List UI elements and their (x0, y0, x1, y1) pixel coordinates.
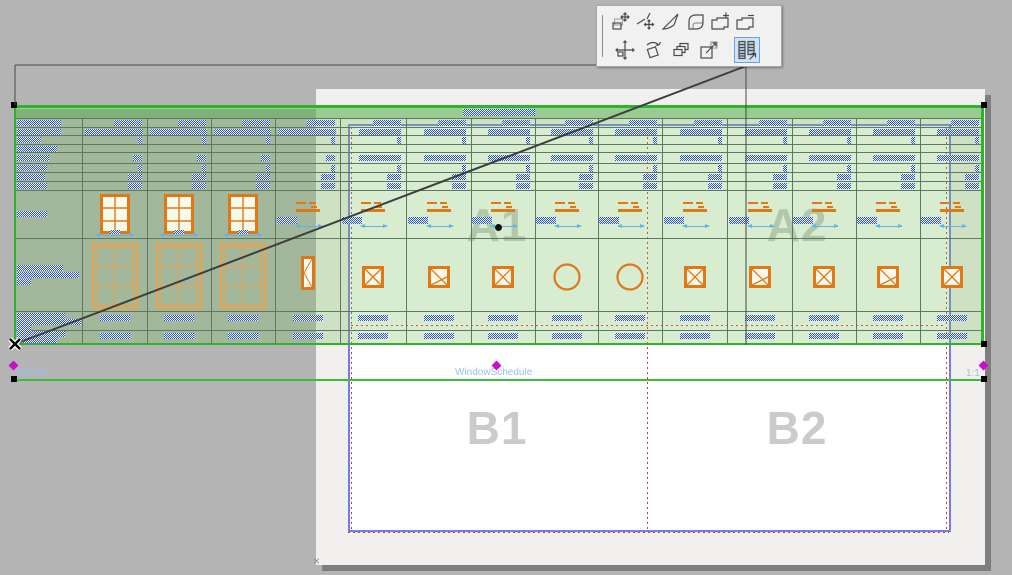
window-plan-symbol (940, 209, 964, 212)
table-row-line (14, 172, 984, 173)
greeked-text (551, 155, 593, 161)
greeked-text (17, 183, 47, 189)
greeked-text (85, 129, 143, 135)
selection-edge-right[interactable] (981, 105, 984, 345)
greeked-text (680, 129, 722, 135)
greeked-text (809, 155, 851, 161)
sheet-corner-marker: × (313, 554, 320, 568)
greeked-text (809, 129, 851, 135)
window-plan-symbol (427, 209, 451, 212)
window-plan-symbol (812, 202, 822, 204)
table-row-line (14, 190, 984, 191)
dimension-line (96, 235, 134, 236)
greeked-text (536, 217, 556, 224)
window-plan-symbol (555, 202, 565, 204)
pet-palette[interactable] (596, 5, 782, 67)
table-row-line (14, 144, 984, 145)
greeked-text (565, 120, 593, 126)
greeked-text (526, 165, 530, 172)
drawing-title-label[interactable]: WindowSchedule (455, 367, 532, 378)
greeked-text (873, 129, 915, 135)
window-square-symbol (749, 266, 771, 288)
greeked-text (164, 315, 194, 321)
greeked-text (397, 165, 401, 172)
greeked-text (17, 155, 49, 161)
greeked-text (293, 315, 323, 321)
greeked-text (552, 315, 582, 321)
move-node-icon[interactable] (609, 10, 633, 34)
greeked-text (238, 230, 248, 234)
greeked-text (387, 183, 401, 189)
move-edge-point-icon[interactable] (634, 10, 658, 34)
greeked-text (17, 211, 47, 217)
greeked-text (873, 155, 915, 161)
greeked-text (488, 155, 530, 161)
window-plan-symbol (763, 206, 769, 208)
greeked-text (424, 129, 466, 135)
greeked-text (615, 129, 657, 135)
greeked-text (462, 165, 466, 172)
window-plan-symbol (761, 202, 768, 204)
window-plan-symbol (812, 209, 836, 212)
greeked-text (17, 272, 79, 278)
greeked-text (128, 174, 142, 180)
dimension-line (361, 226, 387, 227)
greeked-text (17, 174, 45, 180)
window-elevation-large-symbol (220, 243, 266, 309)
greeked-text (192, 183, 206, 189)
selection-handle[interactable] (11, 376, 17, 382)
greeked-text (197, 155, 206, 161)
window-plan-symbol (631, 202, 638, 204)
drawing-title-baseline[interactable] (14, 379, 984, 381)
resize-icon[interactable] (697, 38, 721, 62)
greeked-text (373, 120, 401, 126)
greeked-text (214, 129, 271, 135)
greeked-text (653, 137, 657, 144)
greeked-text (629, 120, 657, 126)
window-plan-symbol (698, 206, 704, 208)
greeked-text (438, 120, 466, 126)
greeked-text (783, 137, 787, 144)
dimension-line (876, 226, 902, 227)
greeked-text (551, 129, 593, 135)
greeked-text (100, 315, 130, 321)
window-square-symbol (813, 266, 835, 288)
greeked-text (615, 155, 657, 161)
greeked-text (150, 129, 207, 135)
greeked-text (773, 174, 787, 180)
greeked-text (133, 155, 142, 161)
curve-edge-icon[interactable] (659, 10, 683, 34)
greeked-text (228, 315, 258, 321)
greeked-text (358, 333, 388, 339)
table-row-line (14, 118, 984, 119)
greeked-text (809, 315, 839, 321)
sheet-shadow (985, 95, 991, 571)
greeked-text (937, 155, 979, 161)
greeked-text (462, 137, 466, 144)
window-plan-symbol (491, 209, 515, 212)
greeked-text (17, 146, 57, 152)
greeked-text (128, 183, 142, 189)
greeked-text (745, 333, 775, 339)
greeked-text (342, 217, 362, 224)
selection-handle[interactable] (11, 102, 17, 108)
dimension-line (683, 226, 709, 227)
window-plan-symbol (296, 209, 320, 212)
greeked-text (783, 165, 787, 172)
window-plan-symbol (504, 202, 511, 204)
fillet-corner-icon[interactable] (684, 10, 708, 34)
greeked-text (424, 315, 454, 321)
selection-edge-bottom[interactable] (14, 343, 984, 345)
window-elevation-large-symbol (92, 243, 138, 309)
table-row-line (14, 163, 984, 164)
dimension-line (427, 226, 453, 227)
greeked-text (773, 183, 787, 189)
greeked-text (937, 129, 979, 135)
window-casement-symbol (301, 256, 315, 290)
window-plan-symbol (568, 202, 575, 204)
greeked-text (965, 183, 979, 189)
greeked-text (138, 137, 142, 144)
window-plan-symbol (440, 202, 447, 204)
greeked-text (873, 333, 903, 339)
multiply-icon[interactable] (669, 38, 693, 62)
greeked-text (664, 217, 684, 224)
greeked-text (17, 279, 31, 285)
selection-handle[interactable] (981, 341, 987, 347)
window-plan-symbol (696, 202, 703, 204)
greeked-text (615, 315, 645, 321)
greeked-text (261, 155, 270, 161)
greeked-text (718, 165, 722, 172)
greeked-text (278, 129, 336, 135)
greeked-text (745, 315, 775, 321)
greeked-text (809, 333, 839, 339)
window-plan-symbol (361, 209, 385, 212)
greeked-text (589, 137, 593, 144)
greeked-title-text (463, 109, 535, 116)
greeked-text (857, 217, 877, 224)
greeked-text (110, 230, 120, 234)
greeked-text (911, 165, 915, 172)
greeked-text (516, 174, 530, 180)
greeked-text (901, 174, 915, 180)
window-plan-symbol (296, 202, 306, 204)
greeked-text (256, 183, 270, 189)
table-row-line (14, 181, 984, 182)
greeked-text (887, 120, 915, 126)
greeked-text (472, 217, 492, 224)
window-plan-symbol (825, 202, 832, 204)
window-elevation-symbol (228, 194, 258, 234)
dimension-line (296, 226, 322, 227)
greeked-text (488, 129, 530, 135)
split-schedule-icon[interactable] (734, 37, 760, 63)
window-plan-symbol (955, 206, 961, 208)
dimension-line (160, 235, 198, 236)
greeked-text (729, 217, 749, 224)
greeked-text (452, 174, 466, 180)
greeked-text (951, 120, 979, 126)
window-plan-symbol (876, 202, 886, 204)
greeked-text (488, 333, 518, 339)
subtract-from-polygon-icon[interactable] (734, 10, 758, 34)
greeked-text (277, 217, 297, 224)
greeked-text (256, 174, 270, 180)
window-square-symbol (877, 266, 899, 288)
window-plan-symbol (683, 202, 693, 204)
window-plan-symbol (940, 202, 950, 204)
window-plan-symbol (427, 202, 437, 204)
window-plan-symbol (555, 209, 579, 212)
greeked-text (358, 315, 388, 321)
window-plan-symbol (748, 202, 758, 204)
greeked-text (424, 155, 466, 161)
grid-cell-label-b2: B2 (767, 401, 828, 455)
window-plan-symbol (376, 206, 382, 208)
greeked-text (837, 183, 851, 189)
sheet-shadow (322, 565, 991, 571)
greeked-text (694, 120, 722, 126)
greeked-text (202, 165, 206, 172)
greeked-text (321, 183, 335, 189)
greeked-text (873, 315, 903, 321)
greeked-text (17, 129, 61, 135)
greeked-text (718, 137, 722, 144)
greeked-text (745, 155, 787, 161)
greeked-text (708, 174, 722, 180)
greeked-text (174, 230, 184, 234)
greeked-text (653, 165, 657, 172)
greeked-text (17, 137, 41, 143)
greeked-text (488, 315, 518, 321)
greeked-text (387, 174, 401, 180)
greeked-text (579, 174, 593, 180)
greeked-text (975, 165, 979, 172)
window-square-symbol (492, 266, 514, 288)
window-plan-symbol (683, 209, 707, 212)
dimension-line (555, 226, 581, 227)
greeked-text (837, 174, 851, 180)
window-plan-symbol (442, 206, 448, 208)
window-plan-symbol (309, 202, 316, 204)
greeked-text (847, 165, 851, 172)
greeked-text (708, 183, 722, 189)
window-circle-symbol (616, 263, 644, 291)
greeked-text (680, 315, 710, 321)
greeked-text (17, 265, 63, 271)
drag-icon[interactable] (613, 38, 637, 62)
greeked-text (937, 333, 967, 339)
window-plan-symbol (491, 202, 501, 204)
greeked-text (937, 315, 967, 321)
window-plan-symbol (374, 202, 381, 204)
greeked-text (965, 174, 979, 180)
greeked-text (192, 174, 206, 180)
window-plan-symbol (311, 206, 317, 208)
table-row-line (14, 311, 984, 312)
greeked-text (921, 217, 941, 224)
dimension-line (748, 226, 774, 227)
window-elevation-large-symbol (156, 243, 202, 309)
greeked-text (17, 120, 61, 126)
cell-anchor-dot (495, 224, 502, 231)
greeked-text (599, 217, 619, 224)
greeked-text (17, 165, 47, 171)
greeked-text (759, 120, 787, 126)
window-plan-symbol (953, 202, 960, 204)
greeked-text (745, 129, 787, 135)
greeked-text (397, 137, 401, 144)
greeked-text (615, 333, 645, 339)
greeked-text (293, 333, 323, 339)
greeked-text (643, 174, 657, 180)
greeked-text (114, 120, 142, 126)
window-plan-symbol (618, 209, 642, 212)
dimension-line (224, 235, 262, 236)
window-plan-symbol (889, 202, 896, 204)
window-square-symbol (362, 266, 384, 288)
window-plan-symbol (876, 209, 900, 212)
drawing-id-label[interactable]: IES-04 (16, 367, 47, 378)
greeked-text (680, 155, 722, 161)
drawing-scale-label[interactable]: 1:1 (966, 368, 980, 379)
greeked-text (680, 333, 710, 339)
greeked-text (526, 137, 530, 144)
greeked-text (502, 120, 530, 126)
table-row-line (14, 135, 984, 136)
palette-grip[interactable] (602, 15, 603, 57)
greeked-text (326, 155, 335, 161)
window-plan-symbol (506, 206, 512, 208)
greeked-text (579, 183, 593, 189)
rotate-icon[interactable] (641, 38, 665, 62)
greeked-text (228, 333, 258, 339)
greeked-text (589, 165, 593, 172)
window-plan-symbol (570, 206, 576, 208)
table-row-line (14, 238, 984, 239)
window-plan-symbol (618, 202, 628, 204)
selection-edge-top-glow (14, 108, 984, 109)
greeked-text (164, 333, 194, 339)
greeked-text (793, 217, 813, 224)
greeked-text (138, 165, 142, 172)
dimension-line (618, 226, 644, 227)
selection-edge-left[interactable] (14, 105, 16, 345)
window-elevation-symbol (100, 194, 130, 234)
greeked-text (266, 137, 270, 144)
greeked-text (202, 137, 206, 144)
window-square-symbol (428, 266, 450, 288)
greeked-text (178, 120, 206, 126)
greeked-text (359, 155, 401, 161)
greeked-text (643, 183, 657, 189)
greeked-text (408, 217, 428, 224)
window-plan-symbol (633, 206, 639, 208)
greeked-text (823, 120, 851, 126)
window-plan-symbol (827, 206, 833, 208)
greeked-text (901, 183, 915, 189)
window-elevation-symbol (164, 194, 194, 234)
greeked-text (424, 333, 454, 339)
greeked-text (516, 183, 530, 189)
greeked-text (321, 174, 335, 180)
window-circle-symbol (553, 263, 581, 291)
layout-canvas[interactable]: A1 A2 B1 B2 × (0, 0, 1012, 575)
greeked-text (552, 333, 582, 339)
greeked-text (331, 165, 335, 172)
window-plan-symbol (891, 206, 897, 208)
dimension-line (812, 226, 838, 227)
greeked-text (359, 129, 401, 135)
window-plan-symbol (748, 209, 772, 212)
table-row-line (14, 127, 984, 128)
window-square-symbol (941, 266, 963, 288)
window-square-symbol (684, 266, 706, 288)
grid-guide-bottom (348, 532, 949, 533)
greeked-text (331, 137, 335, 144)
greeked-text (452, 183, 466, 189)
table-row-line (14, 330, 984, 331)
dimension-line (940, 226, 966, 227)
greeked-text (847, 137, 851, 144)
greeked-text (911, 137, 915, 144)
greeked-text (100, 333, 130, 339)
table-row-line (14, 152, 984, 153)
selection-handle[interactable] (981, 376, 987, 382)
greeked-text (242, 120, 270, 126)
greeked-text (975, 137, 979, 144)
greeked-text (266, 165, 270, 172)
window-plan-symbol (361, 202, 371, 204)
grid-cell-label-b1: B1 (467, 401, 528, 455)
add-to-polygon-icon[interactable] (709, 10, 733, 34)
greeked-text (307, 120, 335, 126)
selection-handle[interactable] (981, 102, 987, 108)
